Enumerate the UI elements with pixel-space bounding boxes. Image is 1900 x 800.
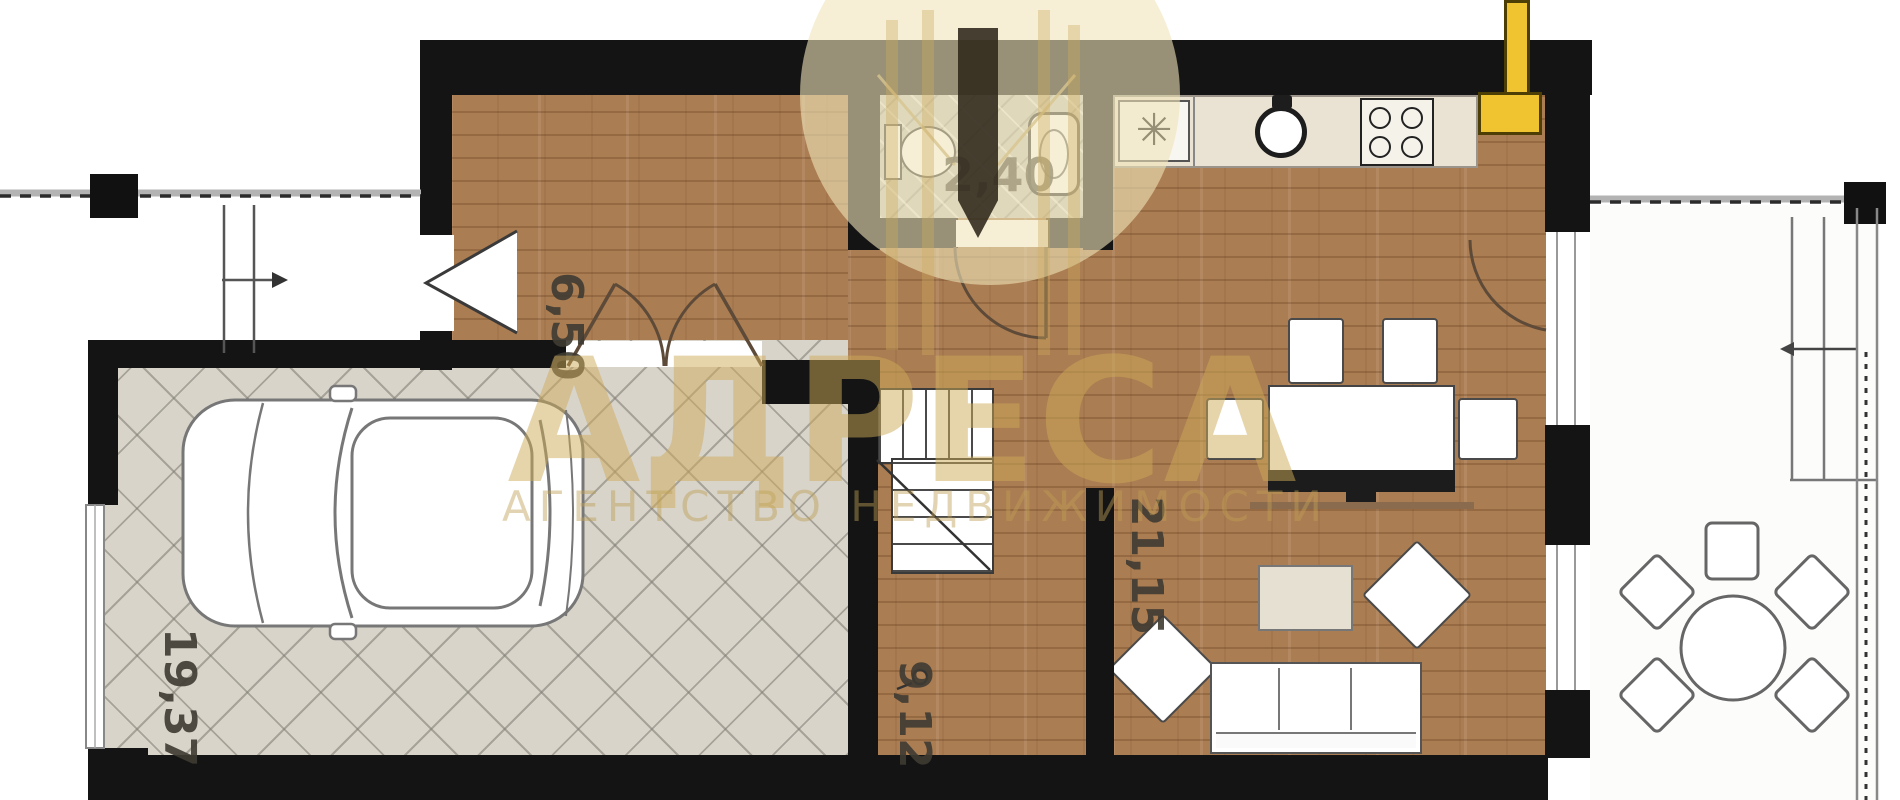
sofa-seat-divider	[1350, 668, 1352, 730]
terrace-door-opening	[1546, 232, 1588, 425]
burner-icon	[1369, 136, 1391, 158]
room-label-hallway: 6,50	[541, 272, 592, 382]
logo-stripe	[1038, 10, 1050, 355]
wall-bottom	[88, 755, 1548, 800]
dining-table-shelf	[1250, 502, 1474, 509]
floor-plan-canvas: ✳	[0, 0, 1900, 800]
dining-chair	[1382, 318, 1438, 384]
hallway-floor	[450, 88, 848, 372]
logo-stripe	[1068, 25, 1080, 355]
dining-table	[1268, 385, 1455, 473]
dining-chair	[1288, 318, 1344, 384]
wall-divider-garage-hall	[848, 362, 878, 758]
sofa	[1210, 662, 1422, 754]
wall-hall-left-upper	[420, 95, 452, 235]
terrace-floor	[1590, 205, 1880, 800]
agency-logo-mark	[958, 28, 998, 238]
wall-garage-top	[88, 340, 566, 368]
kitchen-sink	[1255, 106, 1307, 158]
chimney-flue-stack	[1504, 0, 1530, 95]
staircase-lower-flight	[891, 458, 994, 574]
kitchen-counter-divider	[1193, 97, 1195, 166]
chimney-flue	[1478, 92, 1542, 135]
dining-chair	[1458, 398, 1518, 460]
burner-icon	[1401, 107, 1423, 129]
wall-right-top	[1545, 40, 1590, 232]
sofa-seat-divider	[1278, 668, 1280, 730]
canopy-post	[90, 174, 138, 218]
entrance-opening	[420, 235, 454, 331]
direction-arrow-icon	[272, 272, 288, 288]
logo-stripe	[922, 10, 934, 355]
wall-garage-left	[88, 340, 118, 505]
coffee-table	[1258, 565, 1353, 631]
room-label-garage: 19,37	[154, 628, 205, 768]
dining-chair	[1206, 398, 1264, 460]
room-label-stair-hall: 9,12	[889, 660, 940, 770]
kitchen-faucet	[1272, 95, 1292, 109]
stove	[1360, 98, 1434, 166]
room-label-living-kitchen: 21,15	[1121, 496, 1172, 636]
wall-right-mid	[1545, 425, 1590, 545]
burner-icon	[1369, 107, 1391, 129]
dining-table-edge	[1268, 470, 1455, 492]
window	[1546, 545, 1588, 690]
burner-icon	[1401, 136, 1423, 158]
wall-right-low	[1545, 690, 1590, 758]
wall-divider-hall-living	[1086, 488, 1114, 758]
sofa-backrest	[1216, 732, 1416, 748]
logo-stripe	[886, 20, 898, 350]
staircase-upper-flight	[877, 388, 994, 464]
